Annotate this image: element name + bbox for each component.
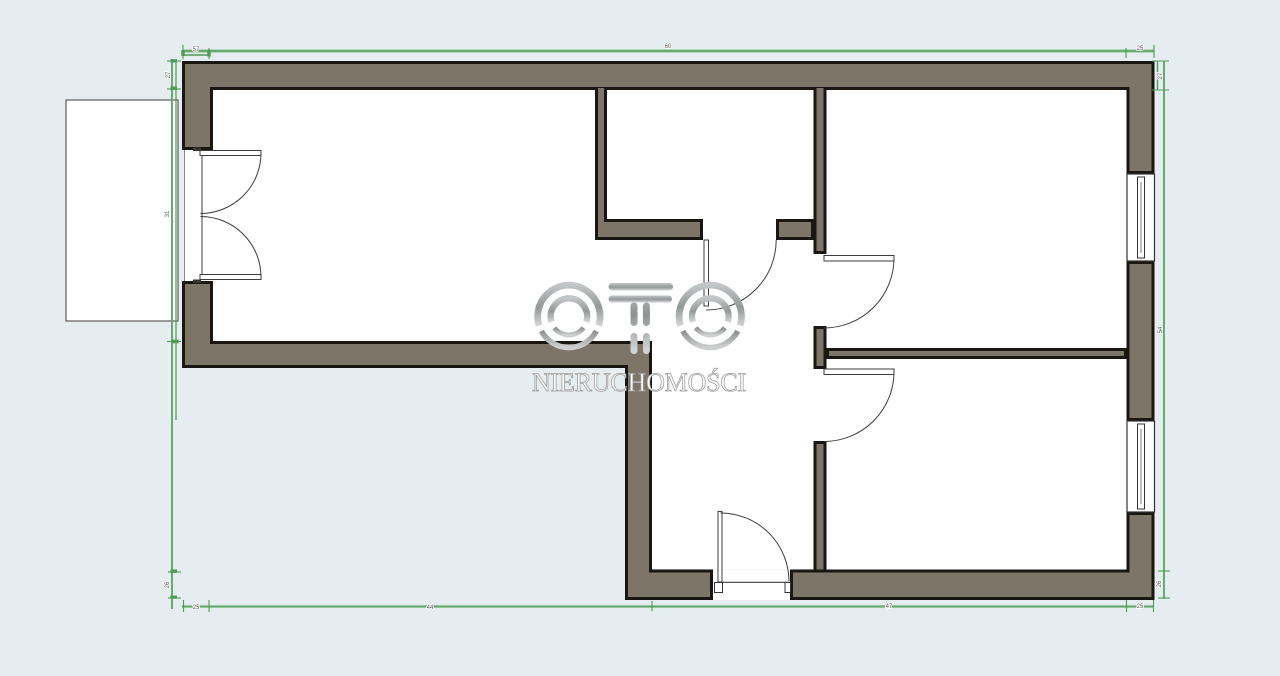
svg-text:31: 31 bbox=[165, 210, 171, 217]
svg-text:54: 54 bbox=[1158, 326, 1164, 333]
svg-text:26: 26 bbox=[1157, 580, 1163, 587]
svg-text:60: 60 bbox=[665, 44, 672, 50]
svg-text:26: 26 bbox=[165, 581, 171, 588]
svg-text:27: 27 bbox=[1158, 72, 1164, 79]
svg-text:47: 47 bbox=[886, 604, 893, 610]
svg-text:27: 27 bbox=[166, 71, 172, 78]
svg-text:44: 44 bbox=[427, 605, 434, 611]
svg-text:25: 25 bbox=[1137, 604, 1144, 610]
svg-text:57: 57 bbox=[193, 47, 200, 53]
svg-text:25: 25 bbox=[193, 605, 200, 611]
svg-text:25: 25 bbox=[1137, 46, 1144, 52]
svg-text:NIERUCHOMOŚCI: NIERUCHOMOŚCI bbox=[532, 368, 746, 397]
